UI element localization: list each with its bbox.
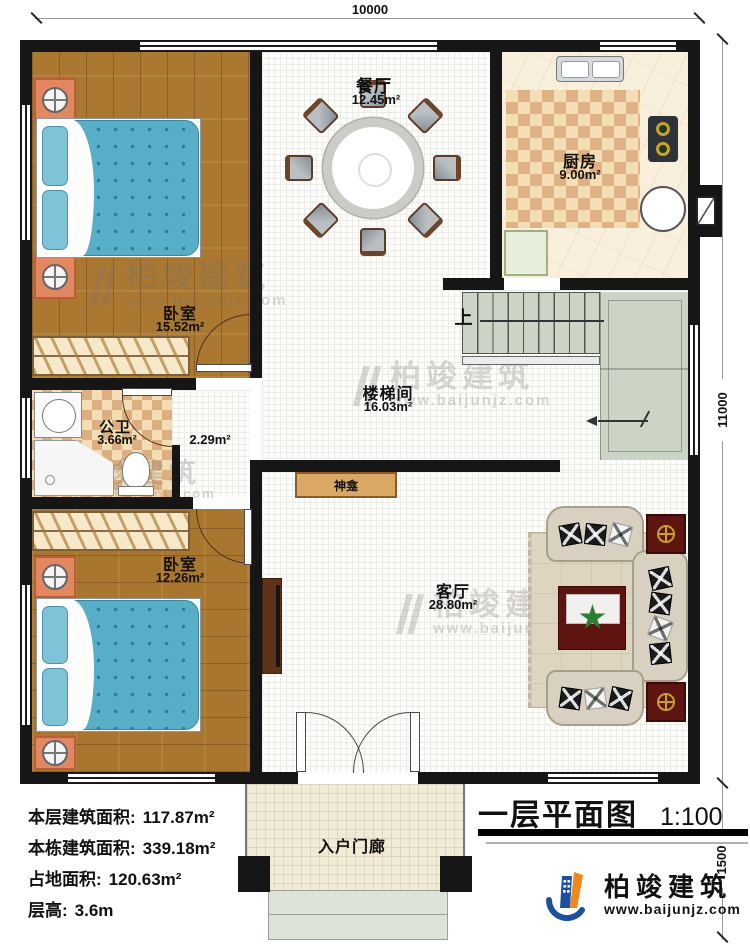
stair-landing-outline <box>608 300 682 452</box>
dimension-right-value: 11000 <box>715 379 731 441</box>
shrine: 神龛 <box>295 472 397 498</box>
window <box>548 772 658 784</box>
stair-up-label: 上 <box>450 304 478 330</box>
window <box>20 585 32 725</box>
wall <box>215 772 298 784</box>
stat-label: 本层建筑面积: <box>28 802 136 833</box>
bedroom1-door-leaf <box>196 364 252 372</box>
page-title: 一层平面图 <box>478 790 638 834</box>
dimension-line-top <box>35 18 700 19</box>
living-area: 28.80m² <box>400 597 506 612</box>
pillow <box>42 668 68 726</box>
entrance-door-leaf <box>410 712 420 772</box>
chair <box>285 155 313 181</box>
cushion <box>607 521 632 546</box>
porch-step <box>268 890 448 916</box>
kitchen-round-table <box>640 186 686 232</box>
sink-basin <box>592 61 620 78</box>
wall <box>418 772 548 784</box>
entrance-door-leaf <box>296 712 306 772</box>
wall <box>172 445 180 497</box>
dimension-top-value: 10000 <box>335 2 405 18</box>
wall <box>250 52 262 378</box>
clock-icon <box>42 87 68 113</box>
bathroom-area: 3.66m² <box>72 433 162 447</box>
wall <box>20 772 68 784</box>
sofa <box>546 670 644 726</box>
window <box>20 105 32 240</box>
wall <box>20 52 32 105</box>
wall <box>560 278 688 290</box>
stat-label: 占地面积: <box>28 864 102 895</box>
wall <box>20 240 32 398</box>
stat-line: 占地面积: 120.63m² <box>28 864 215 895</box>
clock-icon <box>42 740 68 766</box>
porch-pillar <box>238 856 270 892</box>
pillow <box>42 606 68 664</box>
shower-drain <box>45 475 55 485</box>
stat-value: 339.18m² <box>143 833 216 864</box>
cushion <box>647 615 674 642</box>
wall <box>658 772 700 784</box>
stair-direction-line <box>598 420 648 422</box>
wall <box>250 460 262 772</box>
pillow <box>42 126 68 186</box>
stat-label: 本栋建筑面积: <box>28 833 136 864</box>
dining-area: 12.45m² <box>326 92 426 107</box>
chair <box>360 228 386 256</box>
wardrobe <box>32 511 190 551</box>
stat-value: 120.63m² <box>109 864 182 895</box>
cushion <box>648 566 673 591</box>
brand-name: 柏竣建筑 <box>604 873 741 901</box>
stat-label: 层高: <box>28 895 68 926</box>
wall <box>20 40 140 52</box>
kitchen-area: 9.00m² <box>532 167 628 182</box>
tv-screen <box>276 585 280 667</box>
kitchen-cabinet <box>504 230 548 276</box>
title-rule-thick <box>478 829 748 836</box>
side-table <box>646 682 686 722</box>
cushion <box>558 522 582 546</box>
stove <box>648 116 678 162</box>
cushion <box>608 686 633 711</box>
window <box>68 772 215 784</box>
wall <box>20 478 32 585</box>
cushion <box>583 686 607 710</box>
stat-value: 117.87m² <box>143 802 215 833</box>
wardrobe <box>32 336 190 376</box>
coffee-table <box>558 586 626 650</box>
medallion-icon <box>657 693 675 711</box>
stair-up-line <box>480 320 604 322</box>
clock-icon <box>42 264 68 290</box>
nightstand <box>34 78 76 122</box>
window <box>20 398 32 478</box>
brand-block: 柏竣建筑 www.baijunjz.com <box>540 868 741 922</box>
stat-value: 3.6m <box>75 895 114 926</box>
nightstand <box>34 556 76 598</box>
window <box>688 325 700 455</box>
wall <box>443 278 504 290</box>
window <box>600 40 676 52</box>
stairhall-area: 16.03m² <box>340 399 436 414</box>
porch-name: 入户门廊 <box>282 833 422 857</box>
cushion <box>558 686 582 710</box>
shrine-label: 神龛 <box>334 477 358 494</box>
dining-table-center <box>358 153 392 187</box>
dining-table <box>323 118 423 218</box>
sofa <box>546 506 644 562</box>
sink-basin <box>561 61 589 78</box>
bedroom2-door-leaf <box>244 509 252 565</box>
wall <box>437 40 600 52</box>
flue-window <box>696 196 716 226</box>
nightstand <box>34 736 76 770</box>
brand-logo-icon <box>540 868 594 922</box>
window <box>140 40 437 52</box>
side-table <box>646 514 686 554</box>
wall <box>250 460 560 472</box>
porch-pillar <box>440 856 472 892</box>
wall <box>20 497 193 509</box>
clock-icon <box>42 564 68 590</box>
porch-step <box>268 914 448 940</box>
pillow <box>42 190 68 250</box>
bedroom1-area: 15.52m² <box>130 319 230 334</box>
bathroom-door-leaf <box>122 388 172 396</box>
hallway-area: 2.29m² <box>172 432 248 447</box>
stair-railing <box>462 356 600 365</box>
burner-icon <box>656 122 670 136</box>
nightstand <box>34 255 76 299</box>
toilet-tank <box>118 486 154 496</box>
bedroom2-area: 12.26m² <box>130 570 230 585</box>
stats-block: 本层建筑面积: 117.87m² 本栋建筑面积: 339.18m² 占地面积: … <box>28 802 215 926</box>
kitchen-sink <box>556 56 624 82</box>
medallion-icon <box>657 525 675 543</box>
chair <box>433 155 461 181</box>
stat-line: 层高: 3.6m <box>28 895 215 926</box>
tv-cabinet <box>262 578 282 674</box>
wall <box>676 40 700 52</box>
plan-scale: 1:100 <box>660 803 723 832</box>
wall <box>490 52 502 278</box>
sofa <box>632 550 688 682</box>
title-rule-thin <box>486 842 748 844</box>
floor-plan: 柏竣建筑 www.baijunjz.com 柏竣建筑 www.baijunjz.… <box>0 0 750 950</box>
cushion <box>648 642 671 665</box>
cushion <box>583 522 606 545</box>
wall <box>688 455 700 772</box>
cushion <box>648 592 672 616</box>
stair-treads <box>462 292 600 354</box>
title-block: 一层平面图 1:100 <box>478 790 748 834</box>
stair-landing-line <box>600 368 688 370</box>
stat-line: 本层建筑面积: 117.87m² <box>28 802 215 833</box>
stair-direction-arrow <box>586 416 597 426</box>
toilet <box>122 452 150 488</box>
wall <box>20 725 32 772</box>
stat-line: 本栋建筑面积: 339.18m² <box>28 833 215 864</box>
brand-url: www.baijunjz.com <box>604 901 741 917</box>
burner-icon <box>656 142 670 156</box>
